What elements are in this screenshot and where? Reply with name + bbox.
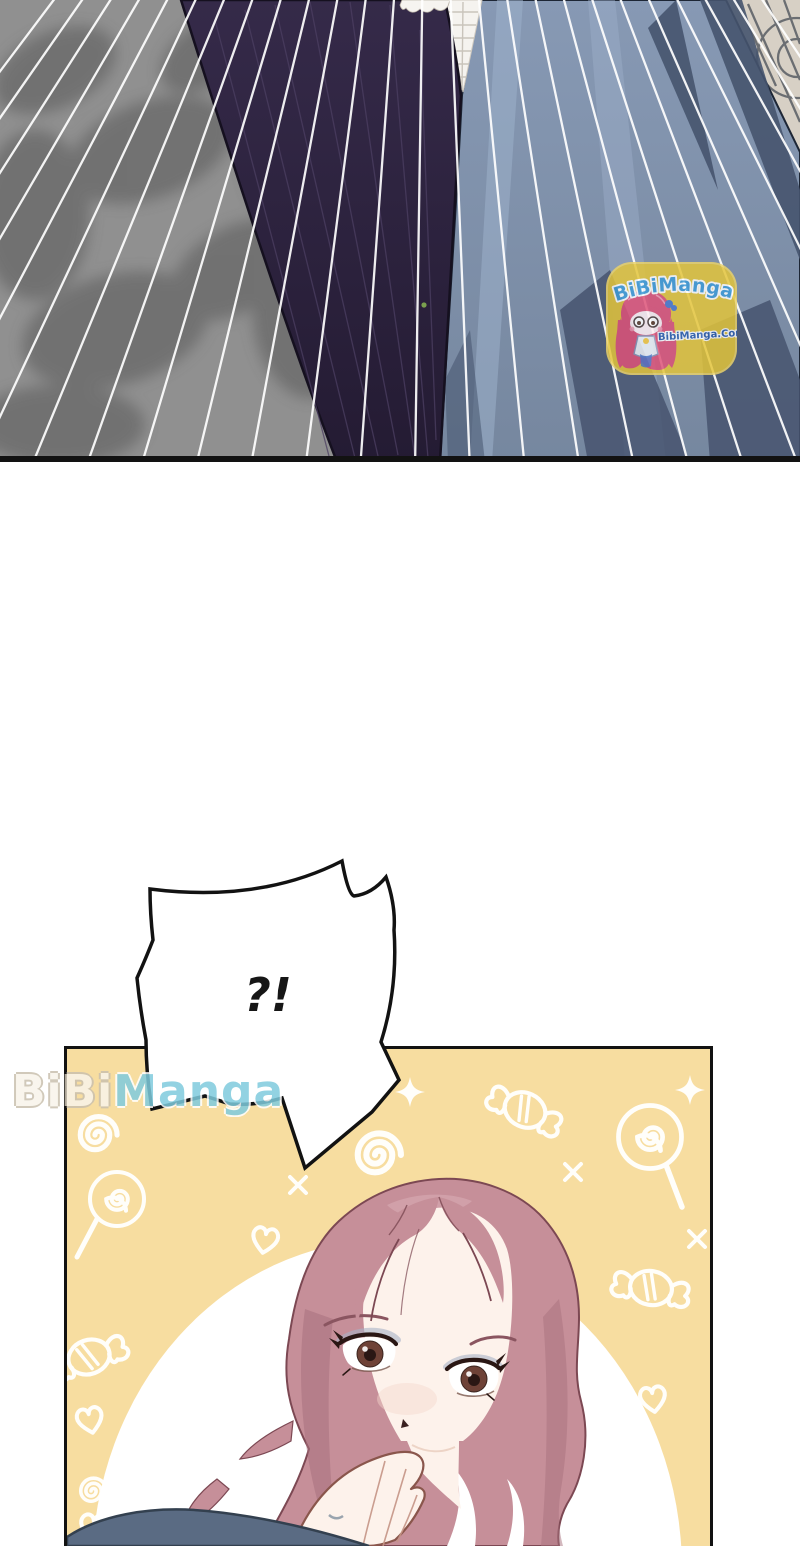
candy-icon [610, 1265, 693, 1312]
blue-dress [440, 0, 800, 462]
svg-text:BiBiManga: BiBiManga [611, 274, 736, 306]
speech-bubble-text: ?! [244, 968, 292, 1022]
dresses-scene [0, 0, 800, 462]
panel-dresses [0, 0, 800, 462]
watermark-text: BiBiManga [12, 1068, 284, 1116]
x-sparkle-icon [565, 1164, 581, 1180]
lollipop-icon [619, 1106, 683, 1208]
watermark-part1: BiBi [12, 1066, 113, 1117]
x-sparkle-icon [689, 1231, 705, 1247]
candy-icon [483, 1078, 568, 1142]
panel-divider [0, 456, 800, 462]
comic-page: BiBiManga BibiManga.Com [0, 0, 800, 1546]
swirl-icon [80, 1117, 117, 1150]
badge-title: BiBiManga [611, 274, 736, 306]
sparkle-icon [675, 1075, 705, 1105]
badge-art: BiBiManga BibiManga.Com [606, 262, 737, 375]
candy-icon [67, 1328, 131, 1387]
heart-icon [75, 1406, 105, 1435]
speech-bubble: ?! [120, 848, 420, 1188]
watermark-badge: BiBiManga BibiManga.Com [606, 262, 737, 375]
watermark-part2: Manga [113, 1066, 284, 1117]
heart-icon [250, 1226, 279, 1255]
brooch-dot [421, 302, 426, 307]
